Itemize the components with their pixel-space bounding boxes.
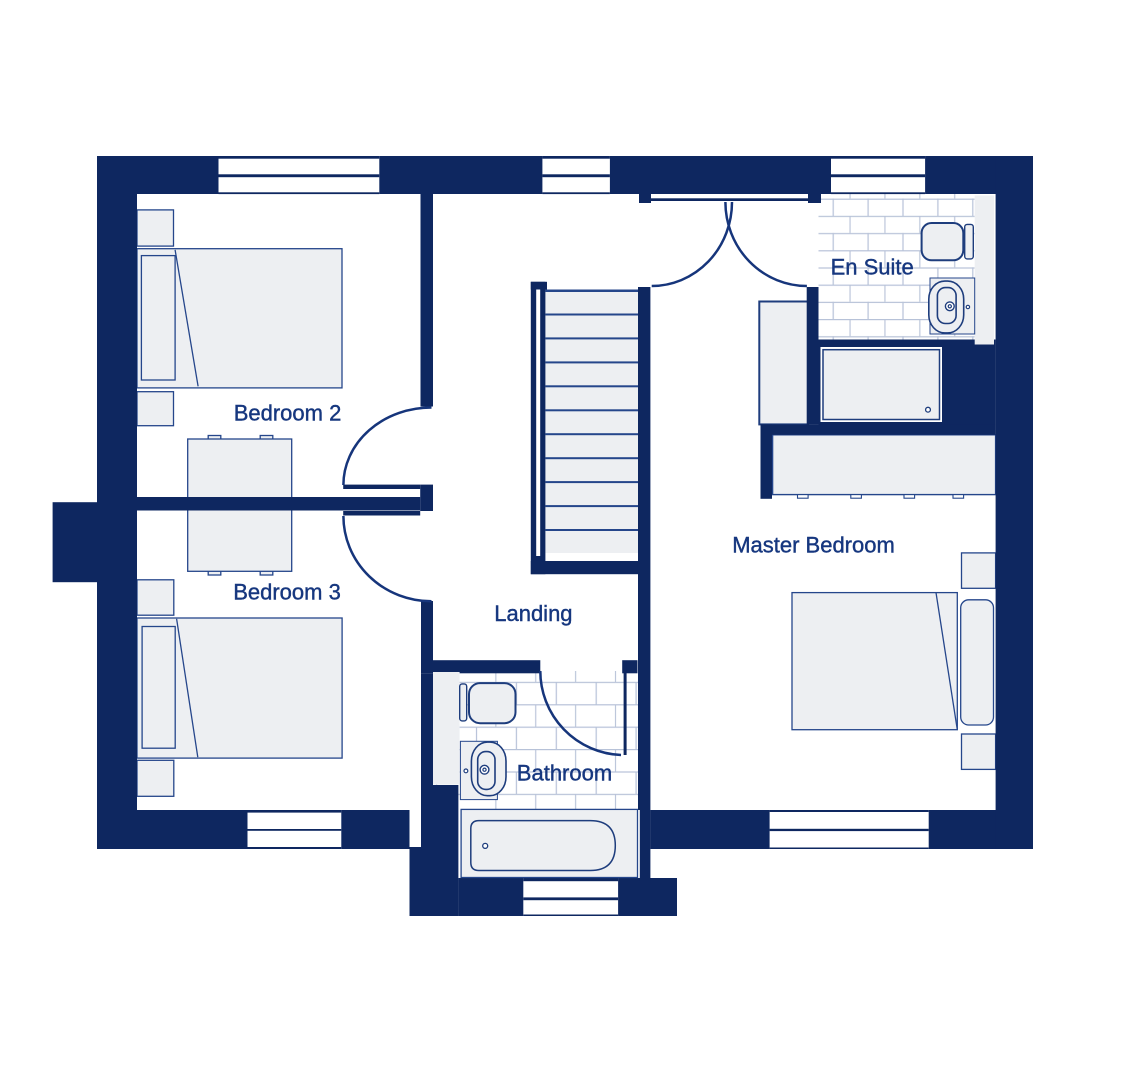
svg-text:En Suite: En Suite [831,255,914,280]
svg-text:Bedroom 2: Bedroom 2 [234,401,342,426]
svg-text:Bathroom: Bathroom [517,761,612,786]
svg-text:Landing: Landing [494,601,572,626]
svg-text:Bedroom 3: Bedroom 3 [233,580,341,605]
svg-text:Master Bedroom: Master Bedroom [732,532,895,557]
